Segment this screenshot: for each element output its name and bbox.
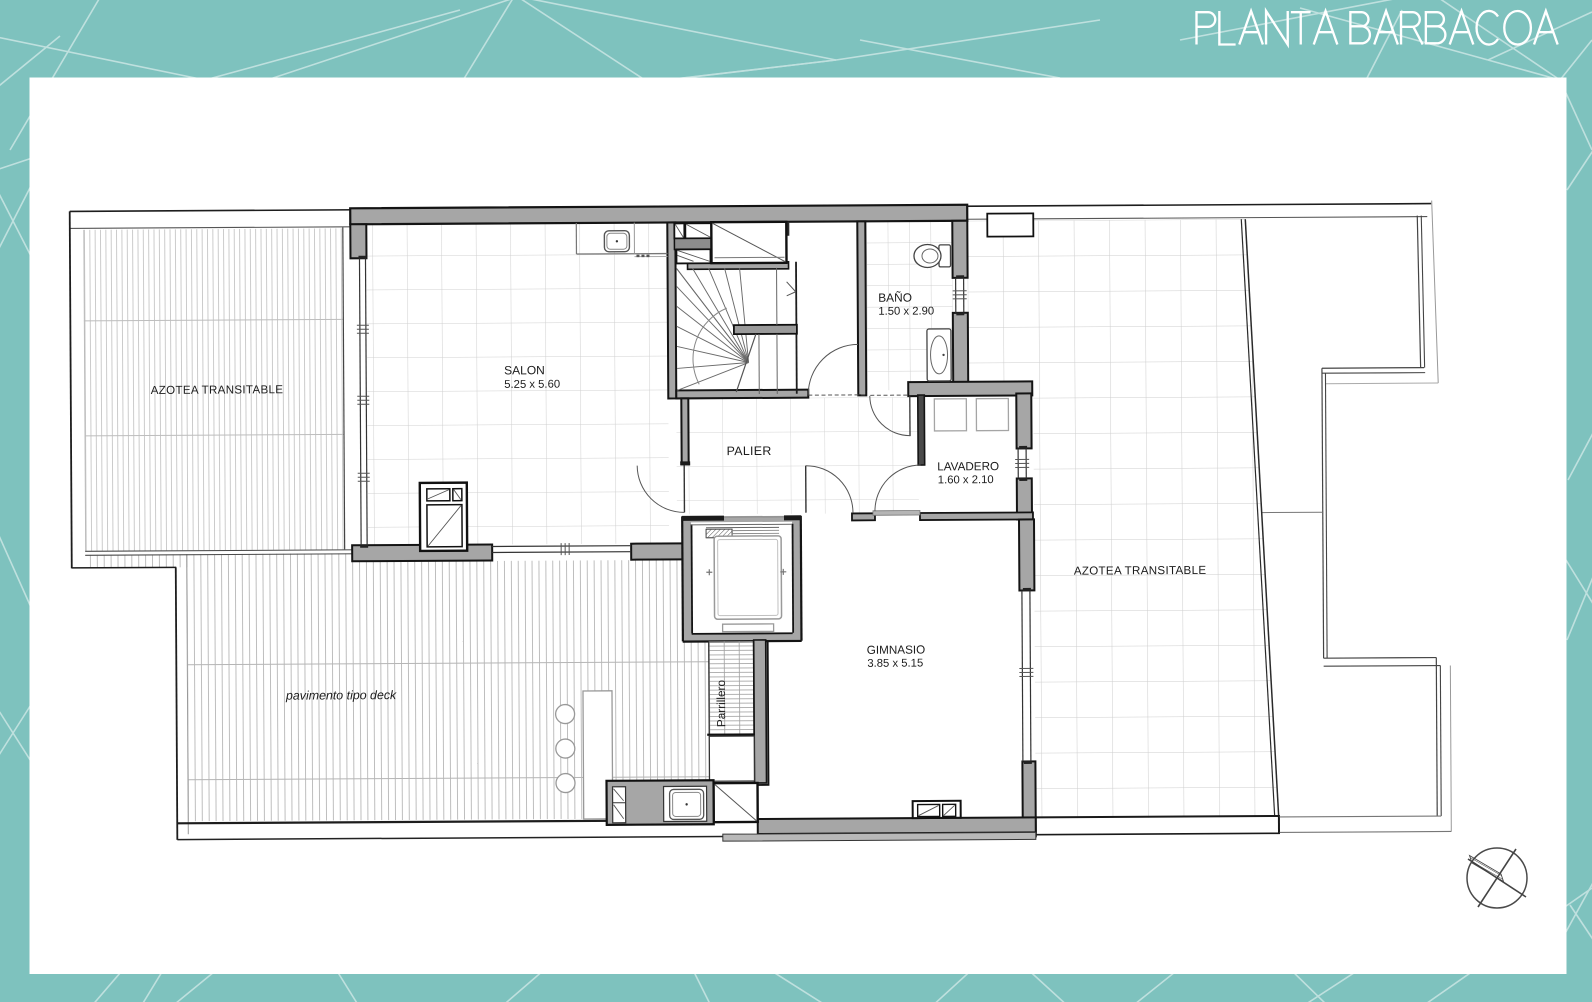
svg-text:5.25 x 5.60: 5.25 x 5.60 bbox=[504, 379, 560, 391]
svg-text:pavimento tipo deck: pavimento tipo deck bbox=[285, 688, 397, 703]
svg-text:BAÑO: BAÑO bbox=[878, 291, 912, 305]
svg-text:SALON: SALON bbox=[504, 363, 545, 377]
svg-text:3.85 x 5.15: 3.85 x 5.15 bbox=[867, 658, 923, 670]
svg-text:1.60 x 2.10: 1.60 x 2.10 bbox=[938, 474, 994, 486]
svg-text:Parrillero: Parrillero bbox=[714, 680, 728, 728]
svg-text:AZOTEA TRANSITABLE: AZOTEA TRANSITABLE bbox=[1074, 564, 1207, 578]
svg-text:GIMNASIO: GIMNASIO bbox=[867, 644, 926, 657]
svg-text:AZOTEA TRANSITABLE: AZOTEA TRANSITABLE bbox=[151, 383, 284, 397]
svg-text:LAVADERO: LAVADERO bbox=[937, 460, 999, 473]
svg-text:1.50 x 2.90: 1.50 x 2.90 bbox=[878, 305, 934, 317]
svg-text:PALIER: PALIER bbox=[727, 444, 772, 458]
